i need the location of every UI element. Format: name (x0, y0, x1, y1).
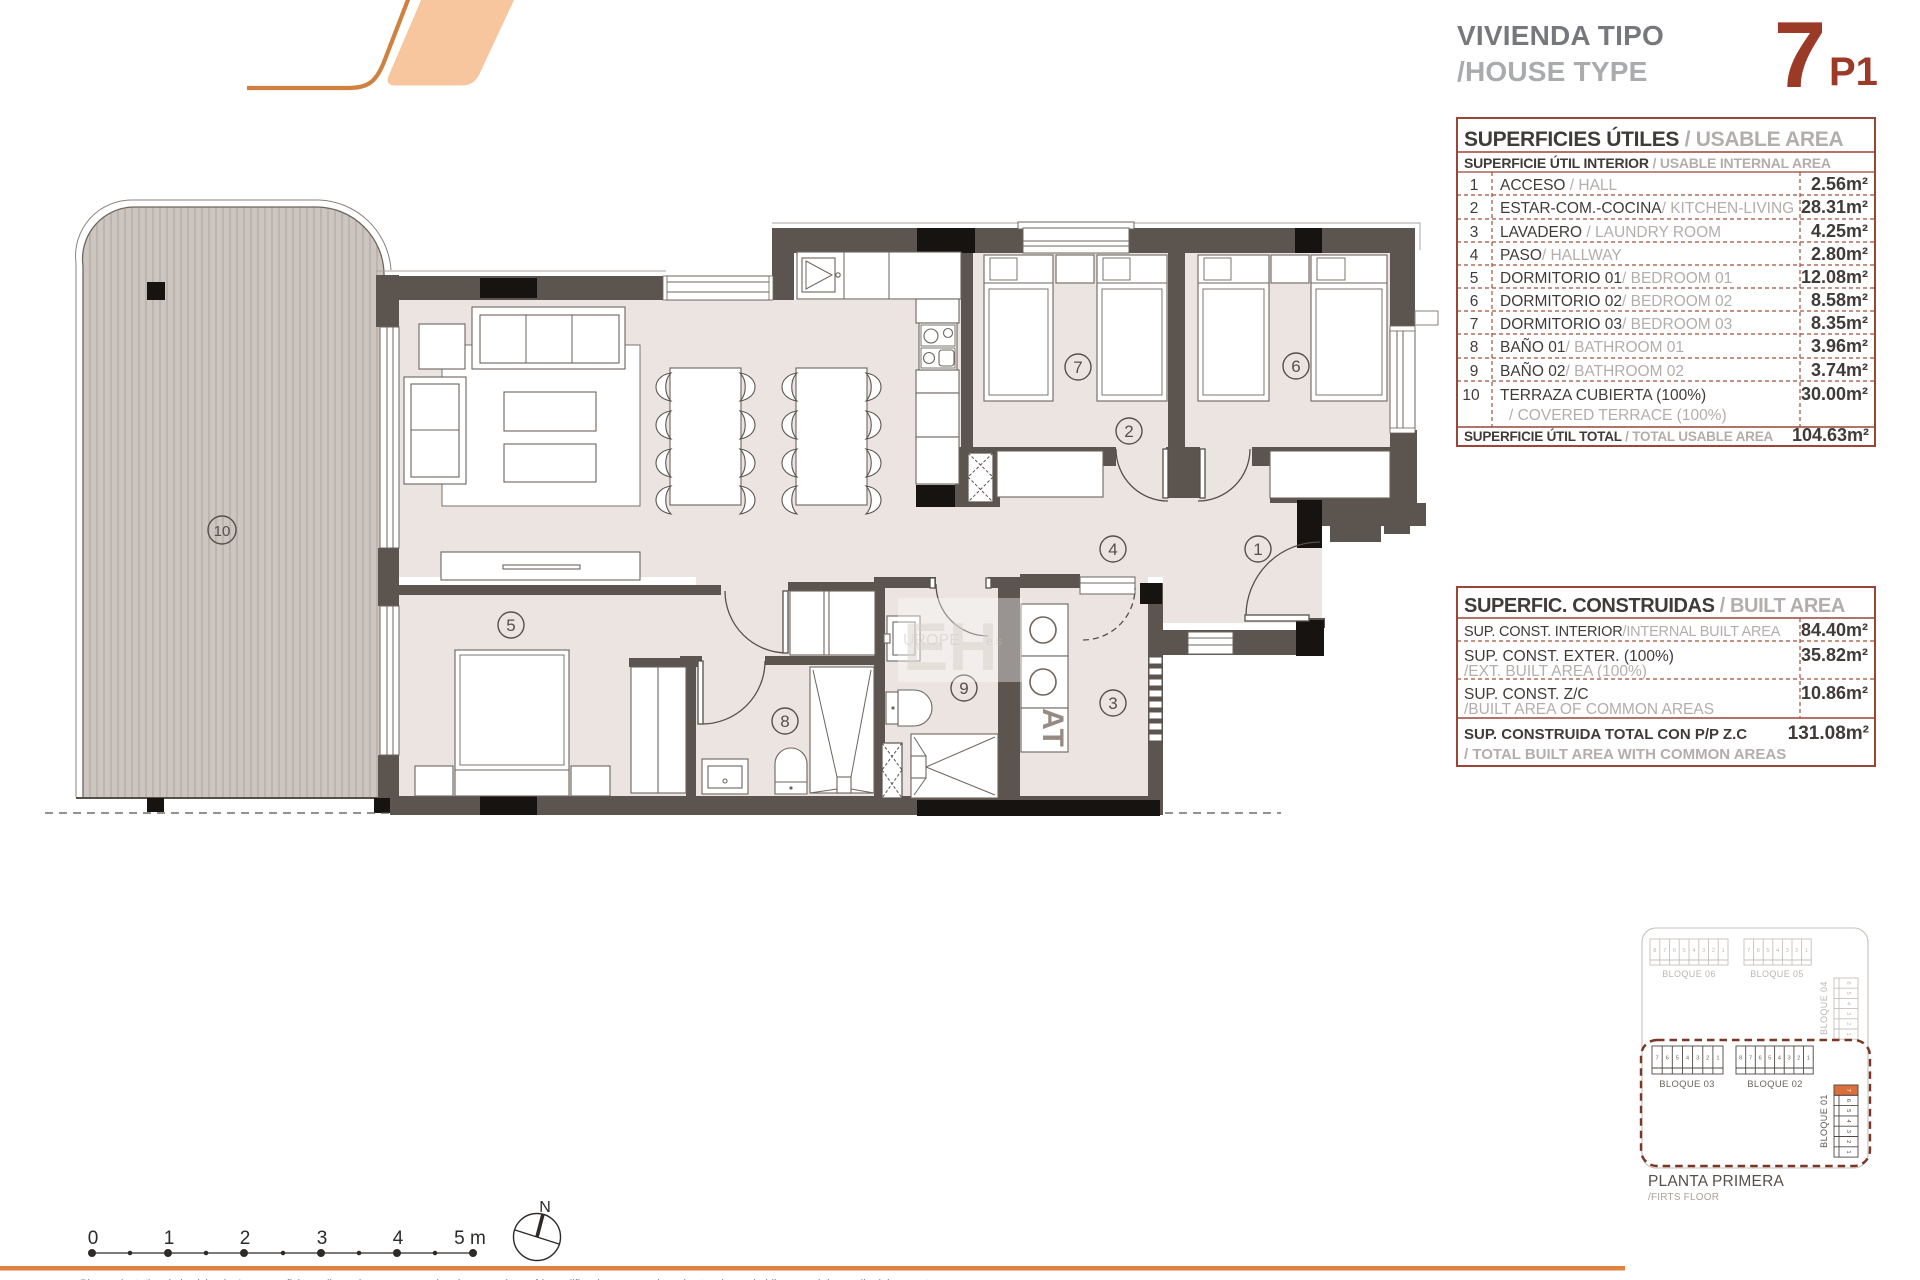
svg-text:DORMITORIO 01/ BEDROOM 01: DORMITORIO 01/ BEDROOM 01 (1500, 270, 1732, 287)
svg-text:3: 3 (1108, 694, 1117, 713)
svg-text:4: 4 (393, 1228, 404, 1249)
svg-text:BLOQUE 02: BLOQUE 02 (1747, 1079, 1803, 1090)
svg-text:BLOQUE 03: BLOQUE 03 (1659, 1079, 1715, 1090)
svg-text:BLOQUE 04: BLOQUE 04 (1819, 981, 1829, 1035)
svg-text:84.40m²: 84.40m² (1801, 620, 1868, 640)
svg-text:6: 6 (1291, 357, 1300, 376)
svg-text:10.86m²: 10.86m² (1801, 683, 1868, 703)
svg-text:BLOQUE 06: BLOQUE 06 (1662, 969, 1716, 979)
svg-text:4.25m²: 4.25m² (1811, 221, 1868, 241)
svg-text:7: 7 (1749, 1056, 1752, 1062)
svg-text:UROPE: UROPE (903, 632, 960, 649)
svg-text:2: 2 (1470, 200, 1479, 217)
svg-text:N: N (539, 1199, 551, 1216)
svg-text:3: 3 (1787, 1056, 1790, 1062)
svg-text:5: 5 (1676, 1056, 1679, 1062)
svg-text:SUPERFICIES ÚTILES / USABLE AR: SUPERFICIES ÚTILES / USABLE AREA (1464, 127, 1843, 151)
svg-text:7: 7 (1747, 948, 1750, 954)
svg-text:104.63m²: 104.63m² (1792, 425, 1869, 445)
svg-text:5: 5 (1768, 1056, 1771, 1062)
svg-text:6: 6 (1470, 293, 1479, 310)
svg-text:DORMITORIO 03/ BEDROOM 03: DORMITORIO 03/ BEDROOM 03 (1500, 316, 1732, 333)
svg-text:5: 5 (1470, 270, 1479, 287)
svg-text:PLANTA PRIMERA: PLANTA PRIMERA (1648, 1173, 1784, 1190)
svg-text:SUPERFICIE ÚTIL TOTAL / TOTAL: SUPERFICIE ÚTIL TOTAL / TOTAL USABLE ARE… (1464, 429, 1774, 444)
svg-text:SUPERFICIE ÚTIL INTERIOR / USA: SUPERFICIE ÚTIL INTERIOR / USABLE INTERN… (1464, 154, 1831, 171)
svg-text:/BUILT AREA OF COMMON AREAS: /BUILT AREA OF COMMON AREAS (1464, 701, 1714, 718)
svg-text:2: 2 (1845, 1140, 1851, 1143)
svg-text:PASO/ HALLWAY: PASO/ HALLWAY (1500, 247, 1622, 264)
svg-text:/EXT. BUILT AREA (100%): /EXT. BUILT AREA (100%) (1464, 663, 1647, 680)
svg-text:/ COVERED TERRACE (100%): / COVERED TERRACE (100%) (1509, 407, 1727, 424)
svg-text:3: 3 (1702, 948, 1705, 954)
svg-text:7: 7 (1073, 358, 1082, 377)
svg-text:6: 6 (1845, 981, 1851, 984)
svg-text:BLOQUE 05: BLOQUE 05 (1750, 969, 1804, 979)
svg-text:10: 10 (1462, 387, 1480, 404)
svg-text:2.56m²: 2.56m² (1811, 174, 1868, 194)
svg-text:ESTAR-COM.-COCINA/ KITCHEN-LIV: ESTAR-COM.-COCINA/ KITCHEN-LIVING (1500, 200, 1794, 217)
svg-text:7: 7 (1655, 1056, 1658, 1062)
svg-text:/ TOTAL BUILT AREA WITH COMMON: / TOTAL BUILT AREA WITH COMMON AREAS (1464, 746, 1786, 763)
svg-text:1: 1 (1716, 1056, 1719, 1062)
svg-text:3: 3 (1845, 1012, 1851, 1015)
svg-text:/FIRTS FLOOR: /FIRTS FLOOR (1648, 1192, 1719, 1203)
svg-text:4: 4 (1470, 247, 1479, 264)
svg-text:2: 2 (240, 1228, 251, 1249)
svg-text:7: 7 (1845, 1089, 1851, 1092)
svg-text:VIVIENDA TIPO: VIVIENDA TIPO (1457, 20, 1664, 51)
svg-text:SUP. CONST. INTERIOR/INTERNAL: SUP. CONST. INTERIOR/INTERNAL BUILT AREA (1464, 624, 1781, 640)
svg-text:4: 4 (1108, 540, 1117, 559)
svg-text:1: 1 (1845, 1032, 1851, 1035)
svg-text:5: 5 (506, 616, 515, 635)
svg-text:6: 6 (1666, 1056, 1669, 1062)
svg-text:ACCESO / HALL: ACCESO / HALL (1500, 177, 1618, 194)
svg-text:8: 8 (1470, 339, 1479, 356)
svg-text:3.74m²: 3.74m² (1811, 360, 1868, 380)
svg-text:8.35m²: 8.35m² (1811, 313, 1868, 333)
svg-text:35.82m²: 35.82m² (1801, 645, 1868, 665)
svg-text:12.08m²: 12.08m² (1801, 267, 1868, 287)
svg-text:BAÑO 02/ BATHROOM 02: BAÑO 02/ BATHROOM 02 (1500, 363, 1684, 380)
svg-text:5 m: 5 m (454, 1228, 486, 1249)
svg-text:2: 2 (1795, 948, 1798, 954)
svg-text:3: 3 (317, 1228, 328, 1249)
svg-text:1: 1 (1805, 948, 1808, 954)
svg-text:8.58m²: 8.58m² (1811, 290, 1868, 310)
svg-text:3.96m²: 3.96m² (1811, 336, 1868, 356)
svg-text:5: 5 (1845, 992, 1851, 995)
svg-text:AT: AT (1036, 708, 1069, 748)
svg-text:1: 1 (1721, 948, 1724, 954)
svg-text:3: 3 (1470, 224, 1479, 241)
svg-text:1: 1 (1470, 177, 1479, 194)
svg-text:5: 5 (1766, 948, 1769, 954)
svg-text:8: 8 (780, 712, 789, 731)
svg-text:2: 2 (1797, 1056, 1800, 1062)
svg-text:3: 3 (1696, 1056, 1699, 1062)
svg-text:BLOQUE 01: BLOQUE 01 (1819, 1094, 1829, 1148)
svg-text:8: 8 (1739, 1056, 1742, 1062)
svg-text:0: 0 (88, 1228, 99, 1249)
svg-text:6: 6 (1845, 1099, 1851, 1102)
svg-text:8: 8 (1653, 948, 1656, 954)
svg-text:2.80m²: 2.80m² (1811, 244, 1868, 264)
svg-text:30.00m²: 30.00m² (1801, 384, 1868, 404)
svg-text:DORMITORIO 02/ BEDROOM 02: DORMITORIO 02/ BEDROOM 02 (1500, 293, 1732, 310)
svg-text:e s: e s (986, 634, 1002, 648)
svg-text:BAÑO 01/ BATHROOM 01: BAÑO 01/ BATHROOM 01 (1500, 339, 1684, 356)
svg-text:2: 2 (1712, 948, 1715, 954)
svg-text:10: 10 (214, 523, 231, 540)
svg-text:TERRAZA CUBIERTA (100%): TERRAZA CUBIERTA (100%) (1500, 387, 1706, 404)
svg-text:1: 1 (1807, 1056, 1810, 1062)
svg-text:2: 2 (1706, 1056, 1709, 1062)
svg-text:3: 3 (1786, 948, 1789, 954)
svg-text:7: 7 (1470, 316, 1479, 333)
svg-text:1: 1 (1253, 540, 1262, 559)
svg-text:7: 7 (1774, 2, 1826, 107)
svg-text:5: 5 (1845, 1109, 1851, 1112)
svg-text:SUPERFIC. CONSTRUIDAS / BUILT: SUPERFIC. CONSTRUIDAS / BUILT AREA (1464, 595, 1845, 617)
svg-text:28.31m²: 28.31m² (1801, 197, 1868, 217)
svg-text:6: 6 (1673, 948, 1676, 954)
svg-text:P1: P1 (1829, 50, 1878, 94)
svg-text:2: 2 (1124, 422, 1133, 441)
svg-text:LAVADERO / LAUNDRY ROOM: LAVADERO / LAUNDRY ROOM (1500, 224, 1721, 241)
svg-text:SUP. CONSTRUIDA TOTAL CON P/P: SUP. CONSTRUIDA TOTAL CON P/P Z.C (1464, 726, 1747, 743)
svg-text:5: 5 (1682, 948, 1685, 954)
svg-text:131.08m²: 131.08m² (1788, 723, 1869, 744)
svg-text:2: 2 (1845, 1022, 1851, 1025)
svg-text:3: 3 (1845, 1130, 1851, 1133)
svg-text:1: 1 (164, 1228, 175, 1249)
svg-text:6: 6 (1758, 1056, 1761, 1062)
svg-text:6: 6 (1757, 948, 1760, 954)
svg-text:/HOUSE TYPE: /HOUSE TYPE (1457, 56, 1647, 87)
svg-text:7: 7 (1663, 948, 1666, 954)
svg-text:1: 1 (1845, 1150, 1851, 1153)
svg-text:9: 9 (1470, 363, 1479, 380)
